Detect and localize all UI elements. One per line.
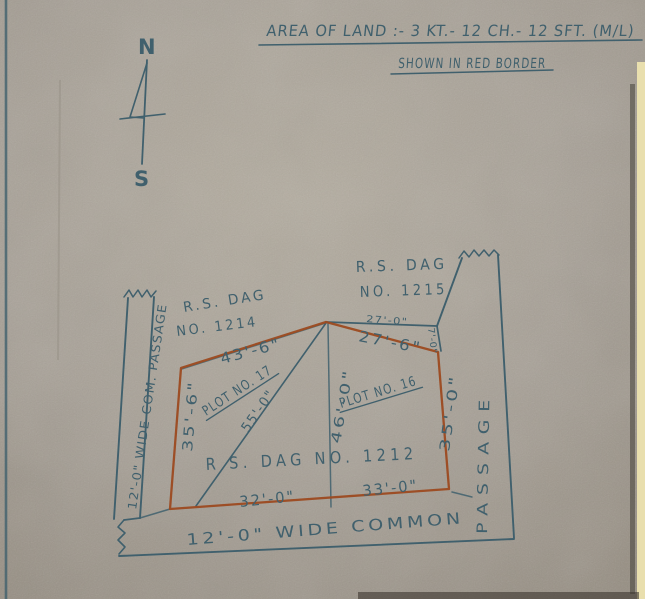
paper-shadow-bottom (358, 592, 639, 599)
compass-south-label: S (134, 167, 149, 191)
dag-1215-line2: NO. 1215 (360, 280, 449, 301)
paper-grain (0, 0, 645, 599)
shown-in-red-border-text: SHOWN IN RED BORDER (398, 56, 547, 72)
mat-edge-right (637, 62, 645, 599)
area-of-land-text: AREA OF LAND :- 3 KT.- 12 CH.- 12 SFT. (… (266, 22, 636, 40)
paper-shadow-right (630, 84, 635, 594)
right-passage-label: PASSAGE (475, 392, 493, 534)
scanned-survey-plan: AREA OF LAND :- 3 KT.- 12 CH.- 12 SFT. (… (0, 0, 645, 599)
survey-drawing: AREA OF LAND :- 3 KT.- 12 CH.- 12 SFT. (… (0, 0, 645, 599)
compass-north-label: N (138, 35, 156, 59)
dag-1215-line1: R.S. DAG (356, 255, 449, 276)
